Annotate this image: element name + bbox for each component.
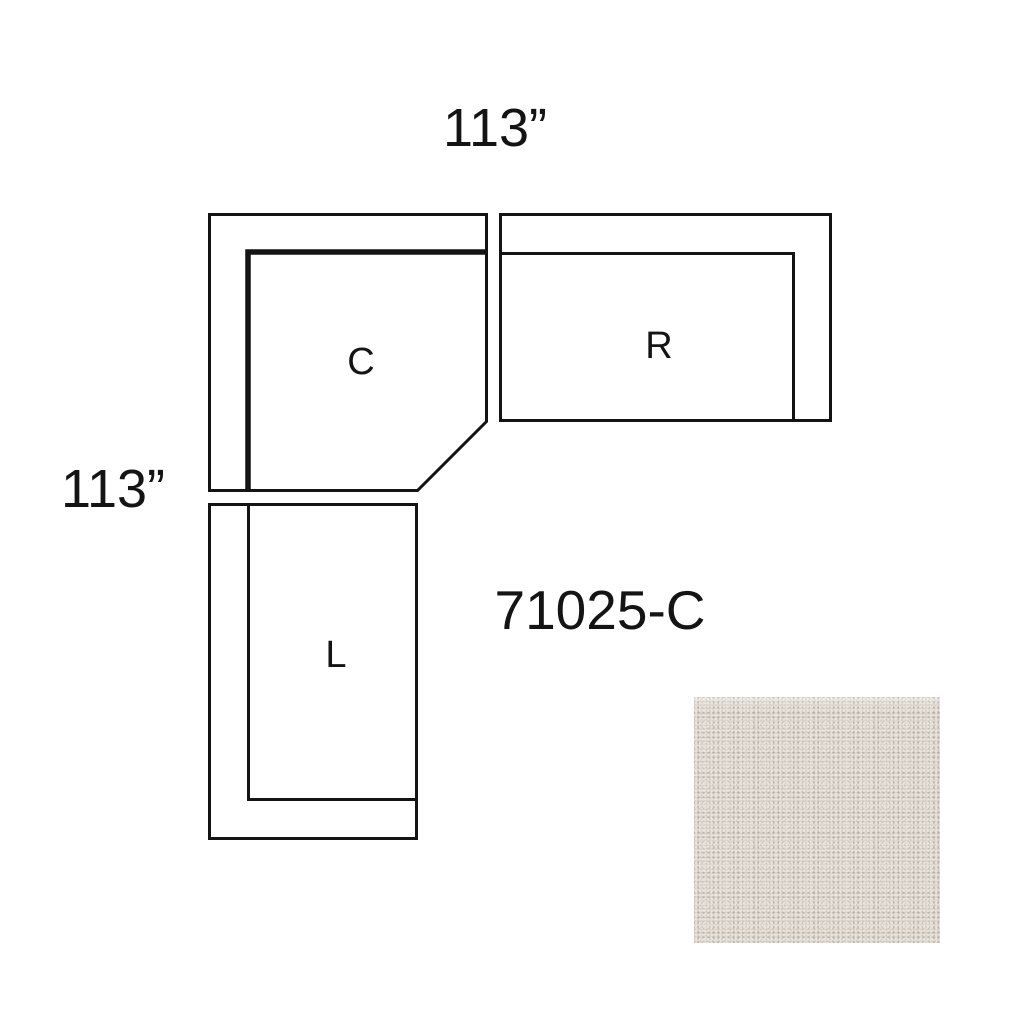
left-piece-label: L xyxy=(325,634,346,676)
dimension-left-label: 113” xyxy=(61,459,165,519)
product-code-label: 71025-C xyxy=(495,579,706,641)
corner-piece-label: C xyxy=(347,341,374,383)
right-piece-label: R xyxy=(645,325,672,367)
left-piece-outline xyxy=(210,505,417,839)
sectional-diagram-page: 113” 113” 71025-C C R L xyxy=(0,0,1024,1023)
dimension-top-label: 113” xyxy=(443,98,547,158)
fabric-swatch-image xyxy=(694,697,940,943)
right-piece-outline xyxy=(501,215,831,421)
